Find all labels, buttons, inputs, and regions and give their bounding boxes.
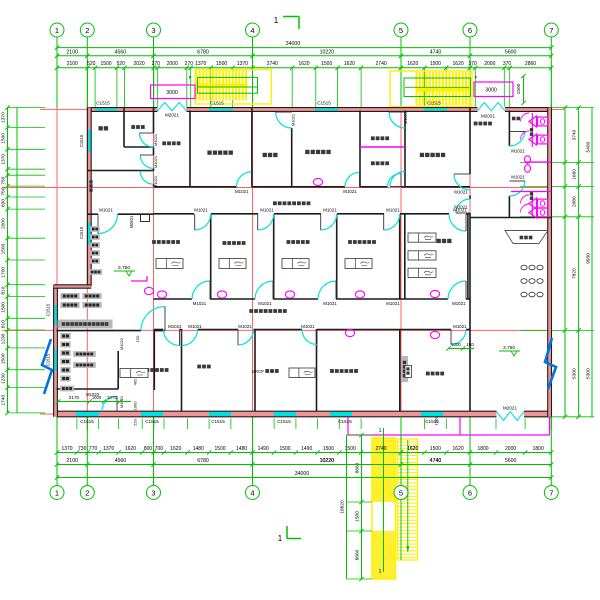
svg-text:7820: 7820: [572, 268, 578, 279]
svg-text:1230: 1230: [1, 373, 7, 384]
svg-text:2: 2: [85, 488, 89, 497]
svg-text:1: 1: [274, 16, 279, 25]
svg-text:5300: 5300: [572, 368, 578, 379]
svg-text:1370: 1370: [61, 446, 72, 452]
svg-text:1500: 1500: [516, 83, 522, 94]
svg-text:5: 5: [399, 488, 403, 497]
svg-text:810: 810: [1, 286, 7, 294]
svg-text:750: 750: [1, 176, 7, 184]
svg-text:3.750: 3.750: [118, 265, 130, 271]
svg-text:M1021: M1021: [301, 324, 315, 329]
svg-text:C1515: C1515: [46, 303, 51, 316]
svg-text:1500: 1500: [430, 446, 441, 452]
svg-text:C1515: C1515: [80, 419, 94, 424]
svg-text:M2021: M2021: [481, 114, 495, 119]
svg-text:2170: 2170: [69, 395, 80, 400]
svg-text:1: 1: [55, 26, 59, 35]
svg-text:1490: 1490: [301, 446, 312, 452]
svg-text:M1021: M1021: [386, 207, 400, 212]
svg-text:1500: 1500: [216, 61, 227, 67]
svg-text:1230: 1230: [1, 333, 7, 344]
svg-text:1: 1: [55, 488, 59, 497]
svg-text:34000: 34000: [286, 41, 301, 47]
svg-text:1620: 1620: [344, 61, 355, 67]
svg-text:M1021: M1021: [153, 155, 158, 168]
svg-text:462: 462: [133, 378, 138, 385]
svg-text:4: 4: [250, 26, 254, 35]
svg-text:M1021: M1021: [193, 301, 207, 306]
svg-text:1500: 1500: [1, 353, 7, 364]
svg-text:1800: 1800: [477, 446, 488, 452]
svg-text:1620: 1620: [170, 446, 181, 452]
svg-text:1620: 1620: [453, 61, 464, 67]
svg-text:M1021: M1021: [238, 324, 252, 329]
svg-text:M1021: M1021: [454, 205, 468, 210]
svg-text:3000: 3000: [485, 88, 497, 94]
svg-text:M1021: M1021: [453, 324, 467, 329]
svg-text:1: 1: [379, 569, 382, 575]
svg-text:1500: 1500: [1, 133, 7, 144]
svg-text:M0821: M0821: [129, 215, 134, 228]
svg-text:2000: 2000: [484, 61, 495, 67]
svg-text:C1515: C1515: [96, 101, 110, 106]
svg-text:M1021: M1021: [323, 207, 337, 212]
svg-text:M1021: M1021: [188, 324, 202, 329]
svg-text:10220: 10220: [320, 458, 335, 464]
svg-text:2860: 2860: [525, 61, 536, 67]
svg-text:M1021: M1021: [119, 337, 124, 350]
svg-text:1: 1: [379, 428, 382, 434]
svg-text:1370: 1370: [103, 446, 114, 452]
svg-text:10220: 10220: [320, 49, 335, 55]
svg-text:370: 370: [468, 61, 477, 67]
svg-text:770: 770: [89, 446, 98, 452]
svg-text:M1021: M1021: [168, 324, 182, 329]
svg-text:1740: 1740: [1, 395, 7, 406]
svg-text:3: 3: [151, 26, 155, 35]
svg-text:9900: 9900: [585, 253, 591, 264]
svg-text:730: 730: [78, 446, 87, 452]
svg-text:1660: 1660: [572, 169, 578, 180]
svg-text:M1021: M1021: [258, 301, 272, 306]
svg-text:18820: 18820: [340, 500, 346, 514]
svg-text:C1515: C1515: [145, 419, 159, 424]
svg-text:1500: 1500: [430, 61, 441, 67]
svg-text:2740: 2740: [375, 446, 386, 452]
svg-text:150: 150: [135, 335, 140, 342]
svg-text:270: 270: [152, 61, 161, 67]
svg-text:2000: 2000: [167, 61, 178, 67]
svg-text:M2021: M2021: [165, 113, 179, 118]
svg-text:M1021: M1021: [386, 301, 400, 306]
svg-text:M1021: M1021: [511, 175, 525, 180]
svg-text:700: 700: [155, 446, 164, 452]
svg-text:F: F: [475, 75, 478, 80]
svg-text:8660: 8660: [355, 549, 361, 560]
svg-text:4740: 4740: [430, 49, 442, 55]
svg-text:4: 4: [250, 488, 254, 497]
svg-text:1370: 1370: [237, 61, 248, 67]
svg-text:C1515: C1515: [211, 419, 225, 424]
svg-text:2740: 2740: [376, 61, 387, 67]
svg-text:C1515: C1515: [210, 101, 224, 106]
svg-text:C1515: C1515: [277, 419, 291, 424]
svg-text:1500: 1500: [100, 61, 111, 67]
svg-text:4740: 4740: [430, 458, 442, 464]
svg-text:3740: 3740: [572, 129, 578, 140]
svg-text:2080: 2080: [572, 196, 578, 207]
svg-text:1000: 1000: [92, 395, 102, 400]
svg-text:1500: 1500: [434, 416, 439, 426]
svg-text:M1021: M1021: [454, 190, 468, 195]
svg-text:1500: 1500: [279, 446, 290, 452]
svg-text:M2021: M2021: [503, 406, 517, 411]
svg-text:1480: 1480: [236, 446, 247, 452]
svg-text:M1021: M1021: [99, 208, 113, 213]
svg-text:4560: 4560: [115, 458, 127, 464]
svg-text:1620: 1620: [298, 61, 309, 67]
svg-text:1800: 1800: [533, 446, 544, 452]
svg-text:1500: 1500: [1, 243, 7, 254]
svg-text:1370: 1370: [1, 112, 7, 123]
svg-text:2100: 2100: [67, 61, 78, 67]
svg-text:2000: 2000: [505, 446, 516, 452]
svg-text:150: 150: [466, 342, 474, 347]
svg-text:F: F: [189, 75, 192, 80]
svg-text:1000: 1000: [133, 401, 138, 411]
svg-text:C1515: C1515: [79, 134, 84, 147]
svg-text:750: 750: [1, 187, 7, 195]
svg-text:C1515: C1515: [338, 419, 352, 424]
svg-text:7: 7: [549, 488, 553, 497]
svg-text:2020: 2020: [134, 61, 145, 67]
svg-text:1500: 1500: [214, 446, 225, 452]
svg-text:1: 1: [278, 534, 283, 543]
svg-text:2: 2: [85, 26, 89, 35]
svg-text:M1021: M1021: [403, 111, 408, 124]
svg-text:5400: 5400: [585, 141, 591, 152]
svg-text:6: 6: [468, 488, 472, 497]
svg-text:C1515: C1515: [79, 226, 84, 239]
svg-text:C1515: C1515: [427, 101, 441, 106]
svg-text:830: 830: [1, 199, 7, 207]
svg-text:M1021: M1021: [260, 207, 274, 212]
svg-text:810: 810: [1, 320, 7, 328]
svg-text:M1021: M1021: [153, 133, 158, 146]
svg-text:M1021: M1021: [153, 175, 158, 188]
svg-text:C1515: C1515: [317, 101, 331, 106]
svg-text:2100: 2100: [66, 458, 78, 464]
svg-text:5300: 5300: [585, 368, 591, 379]
svg-text:6: 6: [468, 26, 472, 35]
svg-text:M1021: M1021: [452, 301, 466, 306]
svg-text:ERCP: ERCP: [252, 369, 264, 374]
svg-text:1490: 1490: [258, 446, 269, 452]
svg-text:M1021: M1021: [343, 189, 357, 194]
svg-text:1370: 1370: [1, 154, 7, 165]
svg-text:370: 370: [503, 61, 512, 67]
svg-text:5600: 5600: [505, 49, 517, 55]
svg-text:2100: 2100: [66, 49, 78, 55]
svg-text:M1021: M1021: [511, 149, 525, 154]
svg-text:2000: 2000: [1, 218, 7, 229]
svg-text:M1021: M1021: [323, 301, 337, 306]
svg-text:1700: 1700: [1, 267, 7, 278]
svg-text:5600: 5600: [505, 458, 517, 464]
svg-text:3.750: 3.750: [503, 345, 515, 351]
svg-text:8660: 8660: [355, 462, 361, 473]
svg-text:34000: 34000: [295, 471, 310, 477]
svg-text:1370: 1370: [195, 61, 206, 67]
svg-text:520: 520: [117, 61, 126, 67]
svg-text:1620: 1620: [407, 61, 418, 67]
svg-text:1620: 1620: [453, 446, 464, 452]
svg-text:1480: 1480: [193, 446, 204, 452]
svg-text:220: 220: [133, 418, 138, 425]
svg-text:270: 270: [185, 61, 194, 67]
svg-text:800: 800: [144, 446, 153, 452]
svg-text:1000: 1000: [451, 342, 461, 347]
svg-text:1500: 1500: [355, 511, 361, 522]
svg-text:6780: 6780: [197, 49, 209, 55]
svg-text:3: 3: [151, 488, 155, 497]
svg-text:M1021: M1021: [291, 113, 296, 126]
svg-text:4560: 4560: [115, 49, 127, 55]
svg-text:1070: 1070: [107, 395, 118, 400]
svg-text:M1021: M1021: [194, 207, 208, 212]
svg-text:1500: 1500: [1, 302, 7, 313]
svg-text:2740: 2740: [267, 61, 278, 67]
svg-text:M1021: M1021: [235, 189, 249, 194]
svg-text:1500: 1500: [321, 61, 332, 67]
svg-text:1620: 1620: [407, 446, 418, 452]
svg-text:5: 5: [399, 26, 403, 35]
svg-text:1620: 1620: [125, 446, 136, 452]
svg-text:1500: 1500: [323, 446, 334, 452]
svg-text:520: 520: [87, 61, 96, 67]
svg-text:6780: 6780: [197, 458, 209, 464]
svg-text:3000: 3000: [166, 90, 178, 96]
svg-text:7: 7: [549, 26, 553, 35]
